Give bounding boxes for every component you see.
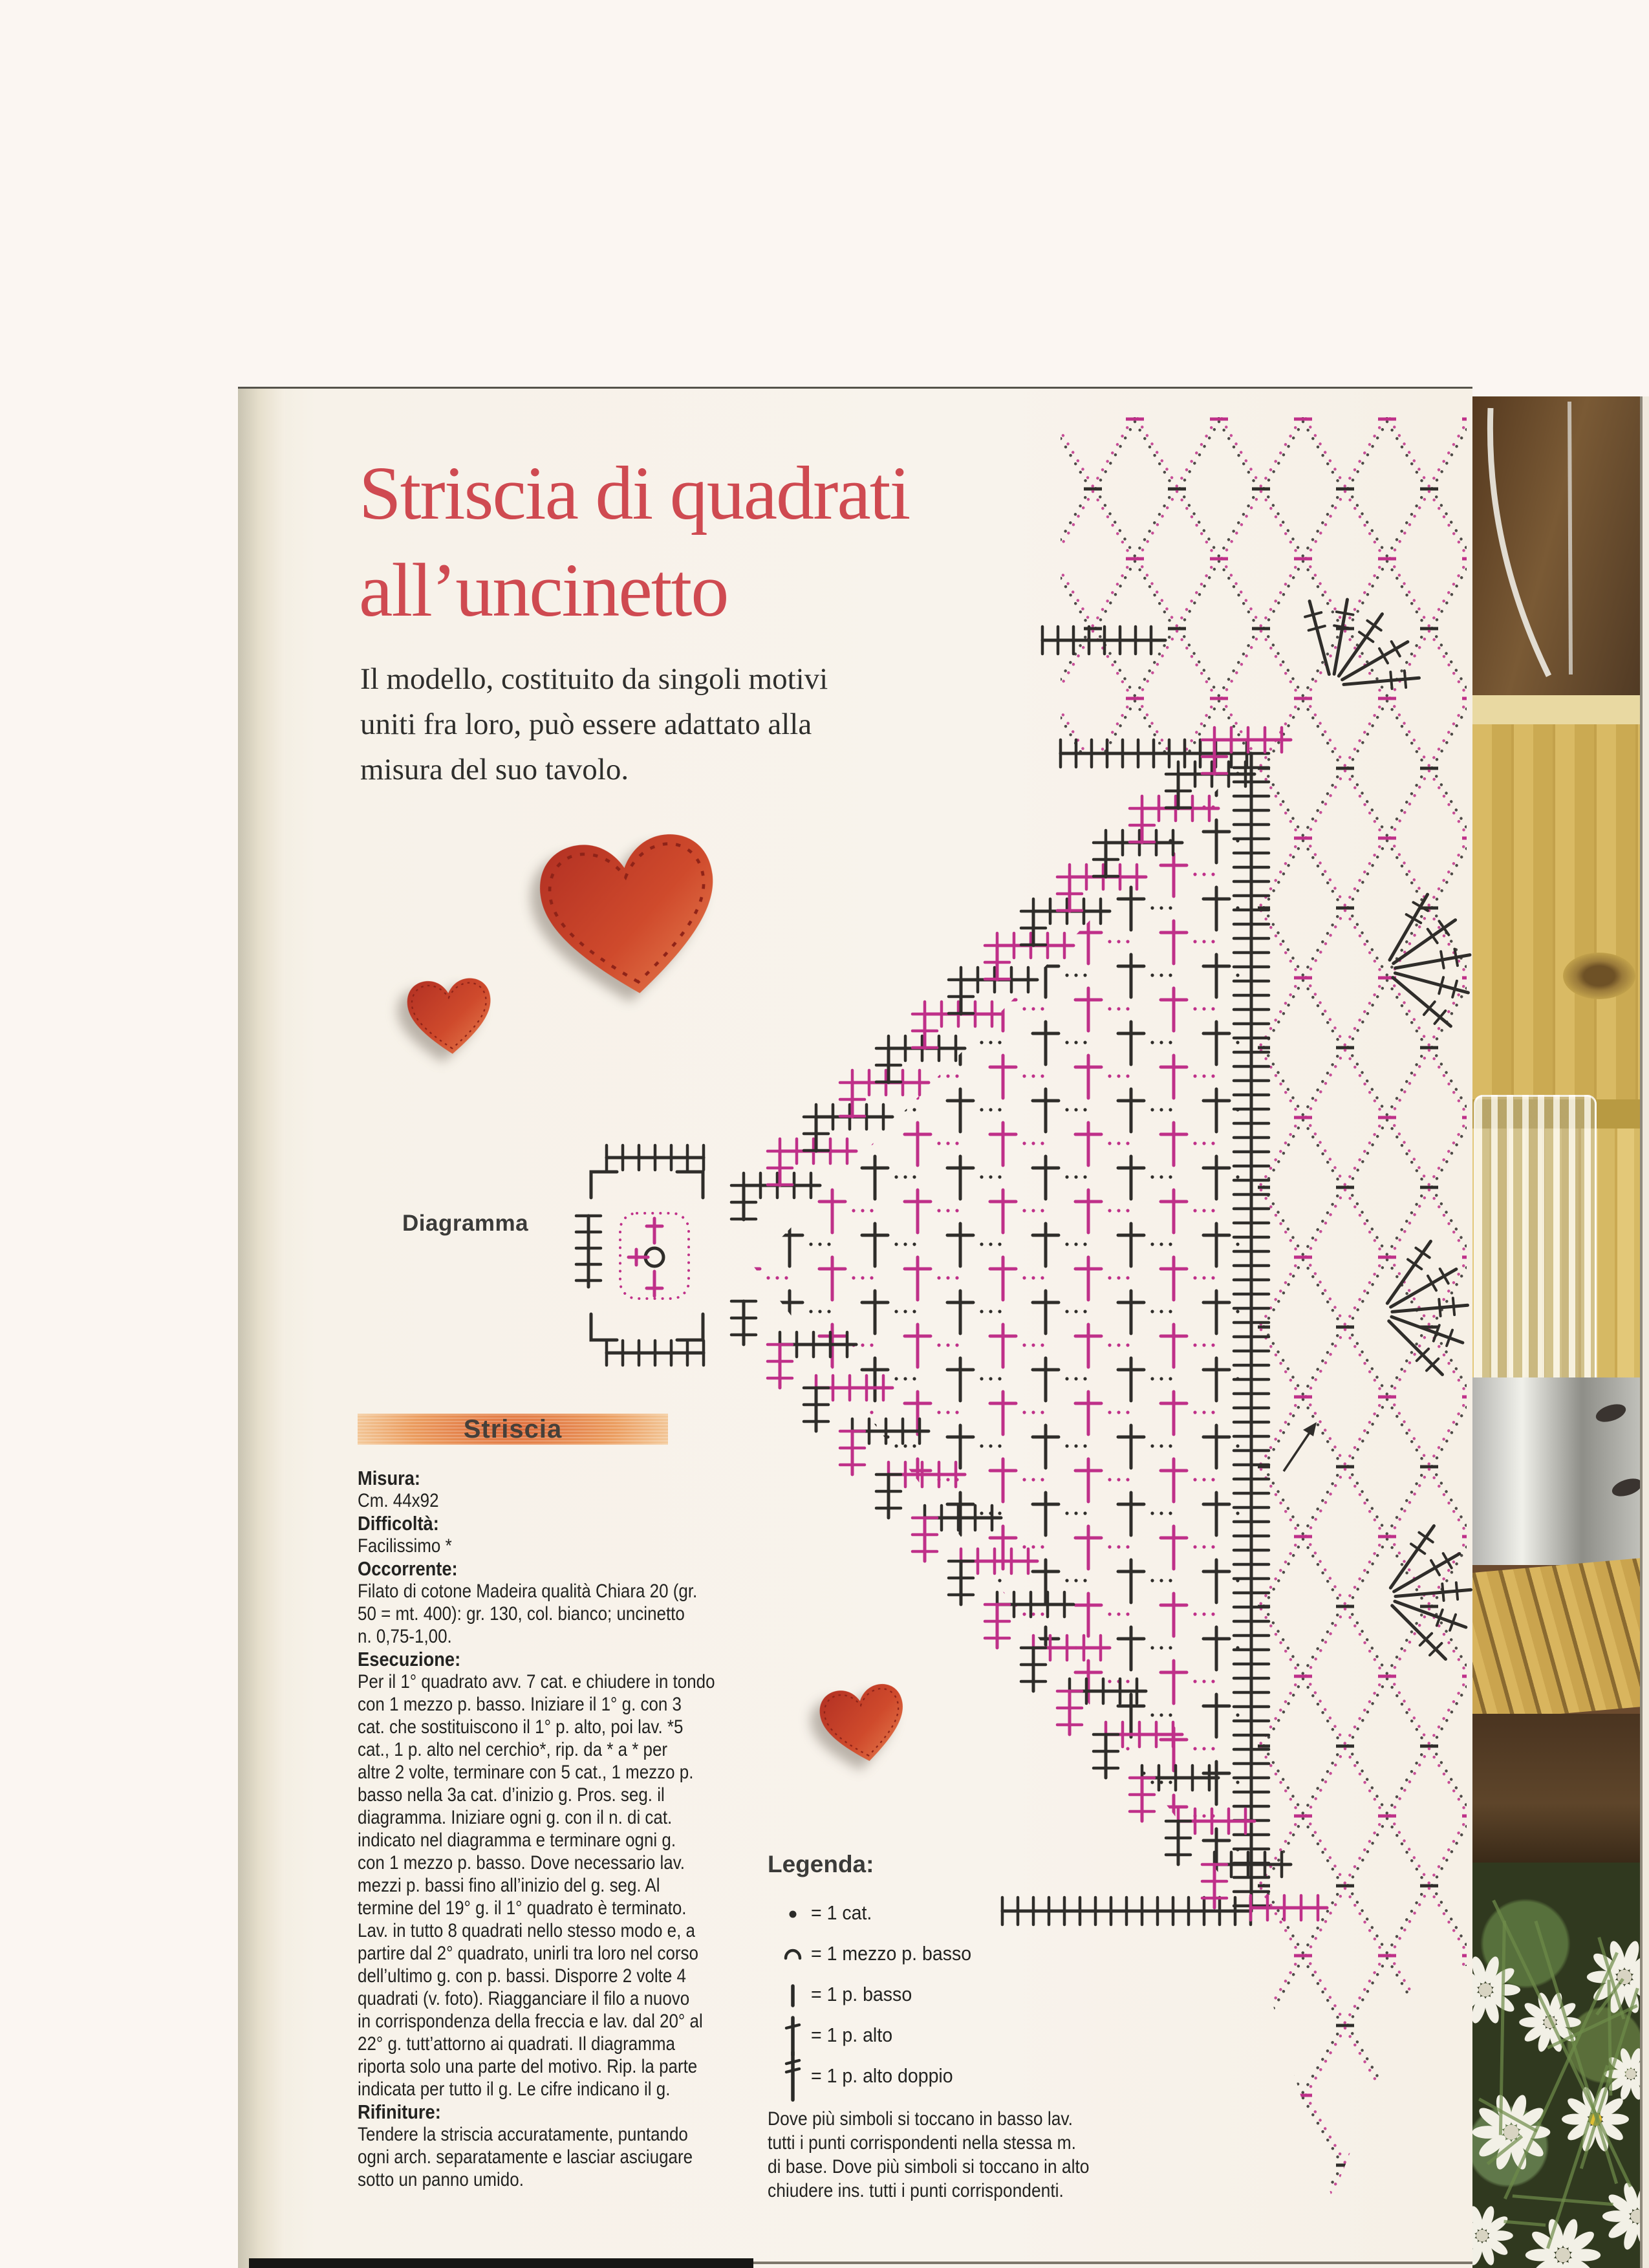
photo-daisies xyxy=(1472,1854,1649,2268)
pattern-line: partire dal 2° quadrato, unirli tra loro… xyxy=(358,1942,756,1965)
section-header-label: Striscia xyxy=(464,1415,563,1444)
heart-photo-small-1 xyxy=(398,975,502,1063)
photo-dark-wood-frame xyxy=(1472,1714,1649,1863)
scan-bottom-bar xyxy=(249,2258,753,2268)
legend-item-label: = 1 p. basso xyxy=(811,1983,912,2006)
legend-item: = 1 mezzo p. basso xyxy=(781,1933,1143,1974)
legend-list: = 1 cat. = 1 mezzo p. basso = 1 p. basso… xyxy=(781,1892,1143,2096)
legend-item-label: = 1 mezzo p. basso xyxy=(811,1942,971,1965)
title-line-2: all’uncinetto xyxy=(359,542,1070,639)
pattern-line: indicata per tutto il g. Le cifre indica… xyxy=(358,2078,756,2101)
crochet-symbol-icon xyxy=(781,2051,804,2101)
photo-counter-edge xyxy=(1472,695,1649,724)
intro-line: uniti fra loro, può essere adattato alla xyxy=(360,702,994,747)
legend-note-line: chiudere ins. tutti i punti corrisponden… xyxy=(768,2179,1132,2203)
photo-wood-knot xyxy=(1563,953,1635,999)
pattern-line: Misura: xyxy=(358,1467,756,1489)
legend-note-line: di base. Dove più simboli si toccano in … xyxy=(768,2155,1132,2179)
heart-photo-large xyxy=(519,824,742,1017)
pattern-line: n. 0,75-1,00. xyxy=(358,1625,756,1648)
intro-line: Il modello, costituito da singoli motivi xyxy=(360,656,994,702)
pattern-line: quadrati (v. foto). Riagganciare il filo… xyxy=(358,1987,756,2010)
photo-edge-sliver xyxy=(1643,396,1649,2268)
page-top-edge xyxy=(238,387,1472,389)
legend-item: = 1 p. basso xyxy=(781,1974,1143,2014)
pattern-line: dell’ultimo g. con p. bassi. Disporre 2 … xyxy=(358,1965,756,1987)
pattern-line: 22° g. tutt’attorno ai quadrati. Il diag… xyxy=(358,2033,756,2055)
pattern-line: Esecuzione: xyxy=(358,1648,756,1670)
intro-line: misura del suo tavolo. xyxy=(360,747,994,792)
pattern-line: cat. che sostituiscono il 1° p. alto, po… xyxy=(358,1716,756,1738)
pattern-line: cat., 1 p. alto nel cerchio*, rip. da * … xyxy=(358,1738,756,1761)
pattern-line: indicato nel diagramma e terminare ogni … xyxy=(358,1829,756,1852)
pattern-line: Filato di cotone Madeira qualità Chiara … xyxy=(358,1580,756,1603)
pattern-line: basso nella 3a cat. d’inizio g. Pros. se… xyxy=(358,1784,756,1806)
pattern-line: in corrispondenza della freccia e lav. d… xyxy=(358,2010,756,2033)
legend-note-line: tutti i punti corrispondenti nella stess… xyxy=(768,2131,1132,2155)
pattern-instructions: Misura:Cm. 44x92Difficoltà:Facilissimo *… xyxy=(358,1467,810,2191)
scan-bottom-line xyxy=(753,2262,1472,2264)
pattern-line: termine del 19° g. il 1° quadrato è term… xyxy=(358,1897,756,1919)
pattern-line: Facilissimo * xyxy=(358,1535,756,1557)
pattern-line: ogni arch. separatamente e lasciar asciu… xyxy=(358,2146,756,2168)
legend-header: Legenda: xyxy=(768,1851,874,1878)
pattern-line: Rifiniture: xyxy=(358,2101,756,2123)
pattern-line: Cm. 44x92 xyxy=(358,1489,756,1512)
pattern-line: con 1 mezzo p. basso. Iniziare il 1° g. … xyxy=(358,1693,756,1716)
intro-text: Il modello, costituito da singoli motivi… xyxy=(360,656,994,792)
heart-photo-small-2 xyxy=(809,1678,919,1774)
diagram-caption: Diagramma xyxy=(402,1211,528,1237)
legend-item: = 1 p. alto doppio xyxy=(781,2055,1143,2096)
pattern-line: Per il 1° quadrato avv. 7 cat. e chiuder… xyxy=(358,1670,756,1693)
pattern-line: Difficoltà: xyxy=(358,1512,756,1535)
pattern-line: Lav. in tutto 8 quadrati nello stesso mo… xyxy=(358,1919,756,1942)
legend-item: = 1 cat. xyxy=(781,1892,1143,1933)
section-header-band: Striscia xyxy=(358,1414,668,1445)
pattern-line: sotto un panno umido. xyxy=(358,2168,756,2191)
legend-note: Dove più simboli si toccano in basso lav… xyxy=(768,2107,1181,2203)
legend-item: = 1 p. alto xyxy=(781,2014,1143,2055)
pattern-line: con 1 mezzo p. basso. Dove necessario la… xyxy=(358,1852,756,1874)
legend-item-label: = 1 p. alto xyxy=(811,2024,892,2047)
photo-wicker-seat xyxy=(1472,1557,1649,1722)
kitchen-photo-strip xyxy=(1472,396,1649,2268)
pattern-line: altre 2 volte, terminare con 5 cat., 1 m… xyxy=(358,1761,756,1784)
legend-item-label: = 1 cat. xyxy=(811,1901,872,1925)
pattern-line: 50 = mt. 400): gr. 130, col. bianco; unc… xyxy=(358,1603,756,1625)
pattern-line: mezzi p. bassi fino all’inizio del g. se… xyxy=(358,1874,756,1897)
pattern-line: riporta solo una parte del motivo. Rip. … xyxy=(358,2055,756,2078)
page-curl-shadow xyxy=(238,389,285,2268)
article-title: Striscia di quadrati all’uncinetto xyxy=(359,445,1070,639)
pattern-line: Occorrente: xyxy=(358,1557,756,1580)
magazine-page-scan: Striscia di quadrati all’uncinetto Il mo… xyxy=(0,0,1649,2268)
title-line-1: Striscia di quadrati xyxy=(359,445,1070,542)
legend-item-label: = 1 p. alto doppio xyxy=(811,2064,953,2088)
photo-chrome-handle xyxy=(1472,396,1649,695)
pattern-line: diagramma. Iniziare ogni g. con il n. di… xyxy=(358,1806,756,1829)
pattern-line: Tendere la striscia accuratamente, punta… xyxy=(358,2123,756,2146)
photo-pine-planks xyxy=(1472,724,1649,1099)
legend-note-line: Dove più simboli si toccano in basso lav… xyxy=(768,2107,1132,2131)
